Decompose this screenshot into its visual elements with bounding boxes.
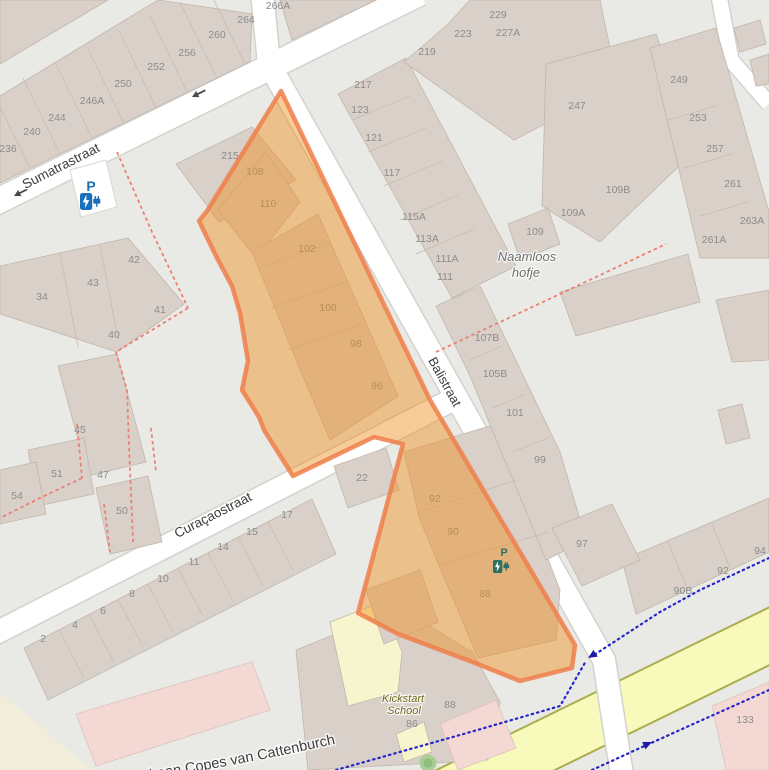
house-number: 4 bbox=[72, 619, 78, 631]
house-number: 40 bbox=[108, 329, 120, 341]
house-number: 133 bbox=[736, 714, 754, 726]
house-number: 229 bbox=[489, 9, 507, 21]
house-number: 51 bbox=[51, 468, 63, 480]
house-number: 105B bbox=[483, 368, 508, 380]
house-number: 42 bbox=[128, 254, 140, 266]
house-number: 15 bbox=[246, 526, 258, 538]
house-number: 50 bbox=[116, 505, 128, 517]
house-number: 6 bbox=[100, 605, 106, 617]
house-number: 240 bbox=[23, 126, 41, 138]
house-number: 47 bbox=[97, 469, 109, 481]
house-number: 8 bbox=[129, 588, 135, 600]
house-number: 17 bbox=[281, 509, 293, 521]
house-number: 121 bbox=[365, 132, 383, 144]
house-number: 10 bbox=[157, 573, 169, 585]
house-number: 249 bbox=[670, 74, 688, 86]
house-number: 223 bbox=[454, 28, 472, 40]
place-label: School bbox=[387, 705, 421, 717]
house-number: 250 bbox=[114, 78, 132, 90]
house-number: 14 bbox=[217, 541, 229, 553]
house-number: 88 bbox=[444, 699, 456, 711]
house-number: 11 bbox=[189, 556, 200, 568]
house-number: 260 bbox=[208, 29, 226, 41]
house-number: 123 bbox=[351, 104, 369, 116]
house-number: 227A bbox=[496, 27, 521, 39]
house-number: 99 bbox=[534, 454, 546, 466]
house-number: 94 bbox=[754, 545, 766, 557]
house-number: 22 bbox=[356, 472, 368, 484]
house-number: 261 bbox=[724, 178, 742, 190]
house-number: 97 bbox=[576, 538, 588, 550]
house-number: 244 bbox=[48, 112, 66, 124]
house-number: 109A bbox=[561, 207, 586, 219]
parking-icon: P bbox=[86, 178, 95, 194]
house-number: 264 bbox=[237, 14, 255, 26]
house-number: 263A bbox=[740, 215, 765, 227]
house-number: 247 bbox=[568, 100, 586, 112]
house-number: 41 bbox=[154, 304, 166, 316]
house-number: 266A bbox=[266, 0, 291, 12]
house-number: 2 bbox=[40, 633, 46, 645]
house-number: 261A bbox=[702, 234, 727, 246]
house-number: 217 bbox=[354, 79, 372, 91]
place-label: Naamloos bbox=[498, 249, 557, 264]
house-number: 256 bbox=[178, 47, 196, 59]
house-number: 101 bbox=[506, 407, 524, 419]
house-number: 253 bbox=[689, 112, 707, 124]
parking-icon: P bbox=[500, 547, 507, 559]
place-label: Kickstart bbox=[382, 693, 425, 705]
house-number: 54 bbox=[11, 490, 23, 502]
house-number: 113A bbox=[415, 233, 439, 245]
house-number: 111A bbox=[436, 253, 459, 265]
house-number: 117 bbox=[384, 167, 401, 179]
house-number: 45 bbox=[74, 424, 86, 436]
house-number: 86 bbox=[406, 718, 418, 730]
house-number: 115A bbox=[402, 211, 426, 223]
house-number: 109 bbox=[526, 226, 544, 238]
place-label: hofje bbox=[512, 265, 540, 280]
house-number: 109B bbox=[606, 184, 631, 196]
house-number: 107B bbox=[475, 332, 500, 344]
house-number: 236 bbox=[0, 143, 17, 155]
house-number: 43 bbox=[87, 277, 99, 289]
map-container: 236240244246A250252256260264266A21521712… bbox=[0, 0, 769, 770]
map-canvas[interactable]: 236240244246A250252256260264266A21521712… bbox=[0, 0, 769, 770]
house-number: 257 bbox=[706, 143, 724, 155]
house-number: 252 bbox=[147, 61, 165, 73]
house-number: 219 bbox=[418, 46, 436, 58]
house-number: 246A bbox=[80, 95, 105, 107]
house-number: 111 bbox=[437, 271, 453, 283]
house-number: 34 bbox=[36, 291, 48, 303]
house-number: 92 bbox=[717, 565, 729, 577]
